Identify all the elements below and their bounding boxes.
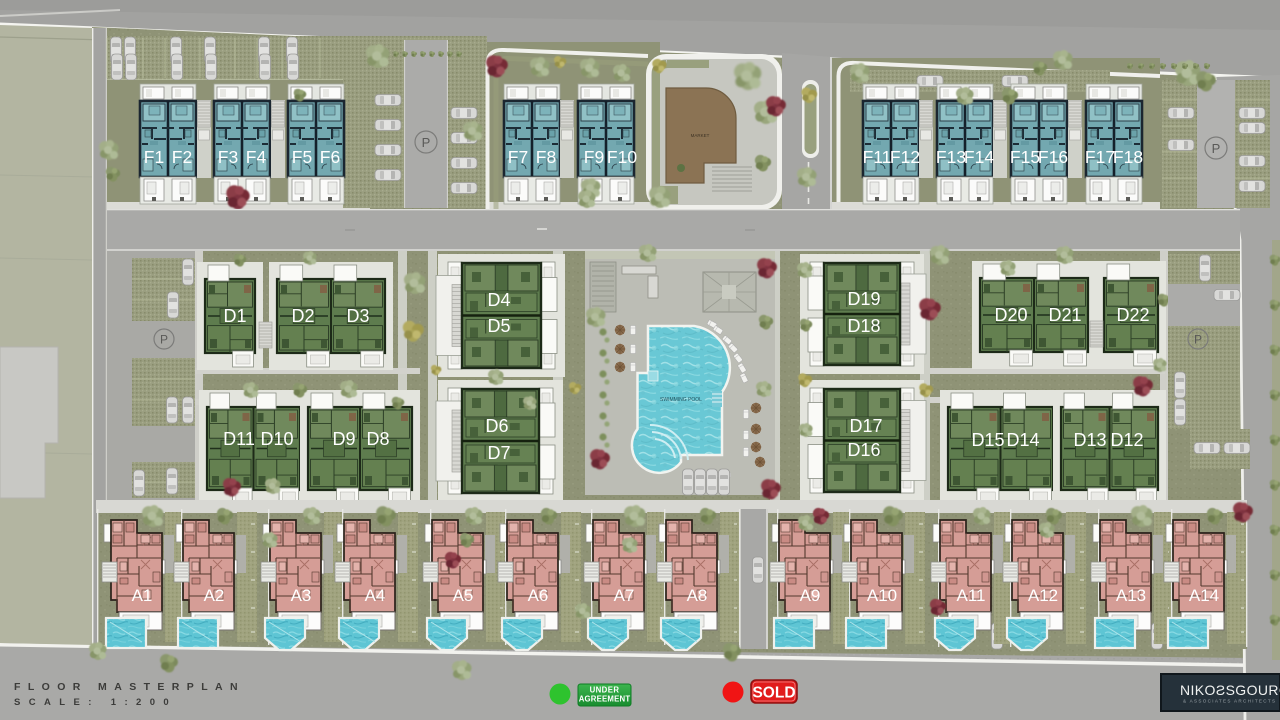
svg-text:F16: F16 — [1038, 147, 1068, 167]
svg-text:P: P — [1212, 141, 1221, 156]
svg-text:D12: D12 — [1110, 430, 1143, 450]
svg-text:MARKET: MARKET — [691, 133, 710, 138]
svg-text:D13: D13 — [1073, 430, 1106, 450]
svg-text:D7: D7 — [487, 443, 510, 463]
svg-text:F17: F17 — [1085, 147, 1115, 167]
svg-text:D21: D21 — [1048, 305, 1081, 325]
svg-text:D11: D11 — [223, 429, 255, 449]
svg-text:F6: F6 — [320, 147, 340, 167]
svg-text:F14: F14 — [964, 147, 994, 167]
svg-text:A13: A13 — [1116, 586, 1146, 605]
svg-text:& ASSOCIATES ARCHITECTS: & ASSOCIATES ARCHITECTS — [1183, 699, 1276, 704]
svg-text:NIKOƧSGOUROƧ: NIKOƧSGOUROƧ — [1180, 682, 1280, 698]
svg-text:P: P — [422, 135, 431, 150]
svg-text:F10: F10 — [607, 147, 637, 167]
svg-text:D4: D4 — [487, 290, 510, 310]
svg-text:A9: A9 — [800, 586, 821, 605]
svg-text:F13: F13 — [936, 147, 966, 167]
svg-text:D19: D19 — [847, 289, 880, 309]
svg-text:F8: F8 — [536, 147, 556, 167]
svg-text:SWIMMING POOL: SWIMMING POOL — [660, 397, 702, 403]
svg-text:SOLD: SOLD — [752, 685, 795, 702]
svg-text:F3: F3 — [218, 147, 238, 167]
svg-text:SCALE: 1:200: SCALE: 1:200 — [14, 697, 177, 708]
svg-text:F11: F11 — [863, 147, 892, 167]
svg-text:A7: A7 — [614, 586, 635, 605]
svg-text:D15: D15 — [971, 430, 1004, 450]
svg-text:P: P — [160, 333, 168, 347]
svg-text:AGREEMENT: AGREEMENT — [579, 695, 631, 704]
svg-text:F4: F4 — [246, 147, 267, 167]
svg-text:F2: F2 — [172, 147, 192, 167]
svg-text:D8: D8 — [366, 429, 389, 449]
svg-text:D5: D5 — [487, 316, 510, 336]
svg-text:F9: F9 — [584, 147, 604, 167]
svg-text:D16: D16 — [847, 440, 880, 460]
svg-text:UNDER: UNDER — [590, 686, 620, 695]
svg-text:D10: D10 — [260, 429, 293, 449]
svg-text:D3: D3 — [346, 306, 369, 326]
svg-text:A10: A10 — [867, 586, 897, 605]
svg-text:D6: D6 — [485, 416, 508, 436]
svg-text:A3: A3 — [291, 586, 312, 605]
svg-text:P: P — [1194, 333, 1202, 347]
svg-text:A1: A1 — [132, 586, 153, 605]
svg-text:FLOOR MASTERPLAN: FLOOR MASTERPLAN — [14, 681, 245, 693]
svg-text:A11: A11 — [957, 586, 986, 605]
svg-text:D20: D20 — [994, 305, 1027, 325]
svg-text:A12: A12 — [1028, 586, 1058, 605]
svg-text:A5: A5 — [453, 586, 474, 605]
svg-text:D17: D17 — [849, 416, 882, 436]
svg-text:D9: D9 — [332, 429, 355, 449]
svg-text:F15: F15 — [1010, 147, 1040, 167]
svg-text:D22: D22 — [1116, 305, 1149, 325]
svg-text:F18: F18 — [1113, 147, 1143, 167]
svg-text:A8: A8 — [687, 586, 708, 605]
svg-text:A14: A14 — [1189, 586, 1219, 605]
svg-text:D14: D14 — [1006, 430, 1039, 450]
svg-text:F12: F12 — [890, 147, 920, 167]
svg-text:A6: A6 — [528, 586, 549, 605]
svg-text:D18: D18 — [847, 316, 880, 336]
svg-text:D1: D1 — [223, 306, 246, 326]
svg-text:F1: F1 — [144, 147, 164, 167]
svg-text:F5: F5 — [292, 147, 312, 167]
svg-text:D2: D2 — [291, 306, 314, 326]
svg-text:A4: A4 — [365, 586, 386, 605]
svg-text:A2: A2 — [204, 586, 225, 605]
svg-text:F7: F7 — [508, 147, 528, 167]
